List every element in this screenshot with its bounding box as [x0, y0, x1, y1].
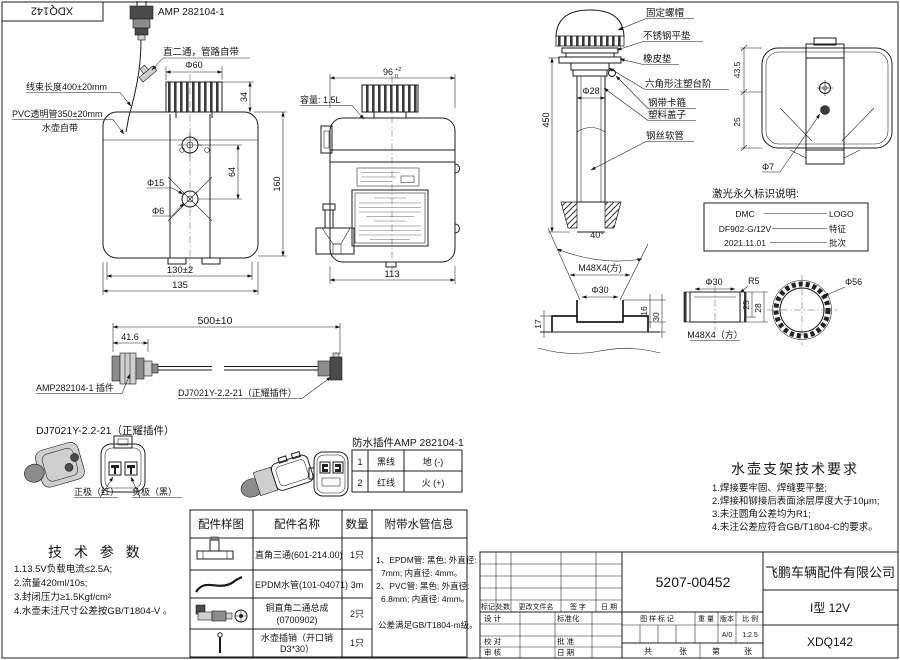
hose-info-line: 2、PVC管: 黑色; 外直径:	[376, 581, 470, 591]
dim-96: 96	[383, 67, 393, 77]
wp-role: 火 (+)	[422, 478, 445, 488]
req-line: 3.未注圆角公差均为R1;	[712, 508, 811, 520]
wp-no: 1	[357, 457, 362, 467]
laser-row-left: DF902-G/12V	[719, 224, 772, 234]
positive-label: 正极（红）	[74, 486, 119, 497]
drawing-number: XDQ142	[807, 635, 853, 649]
title-block: 标记 处数 更改文件名 签 字 日 期 设 计 标准化 校 对 批 准 审 核 …	[480, 552, 898, 658]
laser-row-left: 2021.11.01	[724, 238, 766, 248]
laser-row-right: 特征	[829, 224, 847, 234]
bottle-body-front	[103, 112, 258, 258]
dim-30: 30	[651, 312, 661, 322]
scale-value: 1:2.5	[742, 632, 758, 639]
part-icon-pin	[218, 633, 222, 653]
company-name: 飞鹏车辆配件有限公司	[765, 565, 895, 580]
part-name-2: D3*30）	[280, 644, 314, 654]
harness-callout: 线束长度400±20mm	[26, 81, 107, 92]
role-standard: 标准化	[557, 613, 580, 623]
sheet-page-label: 第	[712, 646, 720, 656]
dim-d28: Φ28	[582, 86, 599, 96]
waterproof-title: 防水插件AMP 282104-1	[352, 436, 464, 449]
role-check: 校 对	[484, 636, 502, 646]
callout-fixed-nut: 固定螺帽	[646, 7, 684, 19]
side-view: 96 +2 0 容量: 1.5L	[300, 67, 460, 284]
role-design: 设 计	[484, 613, 502, 623]
tech-line: 3.封闭压力≥1.5Kgf/cm²	[14, 591, 111, 603]
laser-mark-box: 激光永久标识说明: DMC LOGO DF902-G/12V 特征 2021.1…	[704, 187, 868, 251]
callout-ss-washer: 不锈钢平垫	[643, 30, 691, 42]
cable-label-left: AMP282104-1 插件	[36, 382, 114, 393]
callout-band-clamp: 钢带卡箍	[648, 97, 687, 109]
drawing-canvas: XDQ142 AMP 282104-1 直二通，管路自带 线束长度400±20m…	[0, 0, 900, 660]
mark-label: 图 样 标 记	[640, 614, 674, 623]
callout-plastic-cover: 塑料盖子	[648, 109, 687, 121]
req-line: 4.未注公差应符合GB/T1804-C的要求。	[712, 521, 878, 533]
part-icon-hose	[196, 577, 242, 592]
hose-info-line: 公差满足GB/T1804-m级。	[378, 620, 478, 630]
rev-label: 标记	[481, 602, 495, 611]
weight-label: 重 量	[698, 615, 714, 623]
waterproof-table: 防水插件AMP 282104-1 1 黑线 地 (-) 2 红线 火 (+)	[352, 436, 464, 492]
tech-line: 4.水壶未注尺寸公差按GB/T1804-V 。	[14, 605, 172, 617]
tee-callout: 直二通，管路自带	[163, 46, 240, 58]
dim-64: 64	[227, 167, 237, 177]
pump-view: Φ28 450 固定螺帽 不锈钢平垫 橡皮垫 六角形注塑台阶 钢带卡箍 塑料盖子…	[541, 7, 729, 232]
pump-dome	[556, 10, 624, 38]
warning-label-plate	[352, 190, 428, 246]
laser-row-right: LOGO	[829, 209, 854, 219]
rev-label: 签 字	[570, 602, 586, 611]
cable-right-connector	[318, 353, 342, 380]
plug-face-icon	[309, 452, 348, 496]
bracket-requirements: 水壶支架技术要求 1.焊接要牢固、焊缝要平整; 2.焊接和铆接后表面涂层厚度大于…	[712, 461, 880, 533]
callout-hex-step: 六角形注塑台阶	[645, 78, 712, 90]
dim-130: 130±2	[167, 265, 193, 276]
cap-r5: R5	[748, 276, 760, 286]
rev-label: 日 期	[601, 603, 617, 611]
req-title: 水壶支架技术要求	[731, 461, 859, 477]
cap-section-view: Φ30 R5 M48X4（方） 25 28	[684, 276, 768, 341]
harness-wire	[126, 40, 141, 132]
hose-info-line: 1、EPDM管: 黑色; 外直径:	[376, 555, 477, 565]
dim-135: 135	[172, 280, 188, 291]
tech-line: 1.13.5V负载电流≤2.5A;	[14, 563, 112, 575]
dim-17: 17	[533, 319, 543, 329]
dim-d15: Φ15	[147, 178, 164, 188]
hose-info-line: 6.8mm; 内直径: 4mm。	[381, 594, 469, 604]
waterproof-plug-detail	[235, 450, 348, 503]
wp-role: 地 (-)	[423, 456, 444, 467]
callout-rubber-washer: 橡皮垫	[643, 53, 672, 65]
dim-41-6: 41.6	[121, 332, 139, 342]
dim-40deg: 40°	[590, 230, 604, 240]
dim-450: 450	[541, 112, 551, 127]
connector-3d-icon	[19, 440, 86, 493]
dim-96-tol-dn: 0	[395, 74, 398, 80]
wp-wire: 红线	[377, 477, 395, 488]
laser-row-left: DMC	[735, 209, 754, 219]
sheets-total-unit: 张	[679, 647, 687, 656]
corner-code-box: XDQ142	[2, 2, 103, 21]
part-qty: 1只	[350, 550, 364, 560]
cap-d56: Φ56	[845, 277, 862, 287]
sheet-page-unit: 张	[744, 647, 752, 656]
cable-assembly: 500±10 41.6 AMP282104-1 插件 DJ7021Y-2.2-2…	[36, 315, 342, 399]
version-value: A/0	[722, 632, 733, 639]
part-qty: 2只	[350, 609, 364, 619]
scale-label: 比 例	[742, 614, 758, 623]
dim-d7: Φ7	[762, 162, 774, 172]
cap-d30: Φ30	[705, 277, 722, 287]
spout	[316, 204, 354, 254]
dim-500: 500±10	[198, 315, 233, 327]
corner-code: XDQ142	[31, 5, 73, 17]
parts-header: 附带水管信息	[385, 517, 454, 531]
version-label: 版本	[720, 614, 734, 623]
bracket-bolt	[821, 106, 830, 115]
model-label: I型 12V	[810, 601, 850, 615]
callout-wire-hose: 钢丝软管	[646, 130, 684, 142]
laser-row-right: 批次	[829, 238, 847, 248]
sheets-total-label: 共	[644, 647, 652, 656]
pvc-callout-2: 水壶自带	[42, 122, 78, 133]
tech-params: 技 术 参 数 1.13.5V负载电流≤2.5A; 2.流量420ml/10s;…	[14, 544, 172, 617]
role-approve: 批 准	[557, 636, 575, 646]
cap-thread: M48X4（方）	[687, 329, 743, 340]
req-line: 1.焊接要牢固、焊缝要平整;	[712, 482, 827, 494]
part-name: 铜直角二通总成	[265, 602, 328, 613]
role-audit: 审 核	[484, 647, 502, 657]
dim-160: 160	[272, 176, 282, 191]
neck-thread: M48X4(方)	[578, 262, 622, 273]
parts-header: 数量	[346, 517, 369, 531]
bracket-view: Φ7 43.5 25	[732, 38, 892, 172]
cap-top-view: Φ56	[767, 275, 862, 345]
pvc-callout: PVC透明管350±20mm	[12, 108, 102, 119]
req-line: 2.焊接和铆接后表面涂层厚度大于10μm;	[712, 495, 880, 507]
rev-label: 更改文件名	[519, 602, 554, 611]
front-view: AMP 282104-1 直二通，管路自带 线束长度400±20mm PVC透明…	[12, 1, 287, 295]
connector-title: DJ7021Y-2.2-21（正耀插件）	[36, 424, 175, 437]
spec-label-plate	[357, 168, 419, 186]
part-name: 水壶插销（开口销	[261, 632, 333, 643]
wp-wire: 黑线	[377, 456, 395, 467]
cable-left-connector	[112, 353, 158, 384]
cable-label-right: DJ7021Y-2.2-21（正耀插件）	[178, 387, 297, 398]
connector-detail: DJ7021Y-2.2-21（正耀插件） 正极（红） 负极（黑）	[19, 424, 182, 498]
dim-43-5: 43.5	[732, 61, 742, 78]
dim-25: 25	[732, 117, 742, 127]
parts-header: 配件名称	[274, 517, 320, 531]
dim-113: 113	[384, 269, 399, 280]
dim-34: 34	[239, 92, 249, 102]
rev-label: 处数	[496, 602, 510, 611]
tech-title: 技 术 参 数	[48, 544, 144, 560]
engineering-drawing-sheet: XDQ142 AMP 282104-1 直二通，管路自带 线束长度400±20m…	[0, 0, 900, 660]
negative-label: 负极（黑）	[132, 486, 177, 497]
part-icon-tee	[197, 537, 233, 559]
part-icon-elbow	[196, 605, 247, 622]
wp-no: 2	[357, 478, 362, 488]
parts-table: 配件样图 配件名称 数量 附带水管信息 直角三通(601-214.00) 1只 …	[190, 510, 478, 657]
part-qty: 1只	[350, 638, 364, 648]
part-number: 5207-00452	[656, 574, 731, 590]
connector-face-icon	[101, 436, 145, 492]
hose-info-line: 7mm; 内直径: 4mm。	[381, 568, 462, 578]
dim-d60: Φ60	[185, 60, 202, 70]
dim-96-tol-up: +2	[395, 67, 401, 73]
front-amp-label: AMP 282104-1	[158, 7, 225, 18]
bracket-plate	[806, 44, 844, 164]
cap-28: 28	[753, 303, 763, 313]
dim-d6: Φ6	[152, 206, 164, 216]
part-name: EPDM水管(101-04071)	[255, 579, 348, 590]
part-name-2: (0700902)	[276, 615, 317, 625]
pump-connector-icon	[130, 6, 153, 19]
tech-line: 2.流量420ml/10s;	[14, 577, 87, 589]
neck-section-view: 40° M48X4(方) Φ30 17 16 30	[533, 228, 666, 353]
laser-title: 激光永久标识说明:	[712, 187, 799, 200]
cap-25: 25	[741, 300, 751, 310]
bottle-cap-side	[362, 85, 418, 112]
part-name: 直角三通(601-214.00)	[255, 549, 343, 560]
dim-16: 16	[639, 306, 649, 316]
parts-header: 配件样图	[198, 517, 244, 531]
bottle-cap-front	[166, 82, 222, 112]
plug-3d-icon	[235, 450, 314, 503]
neck-d30: Φ30	[591, 285, 608, 295]
role-date: 日 期	[557, 648, 574, 657]
part-qty: 3m	[351, 580, 364, 590]
capacity-label: 容量: 1.5L	[300, 94, 341, 105]
